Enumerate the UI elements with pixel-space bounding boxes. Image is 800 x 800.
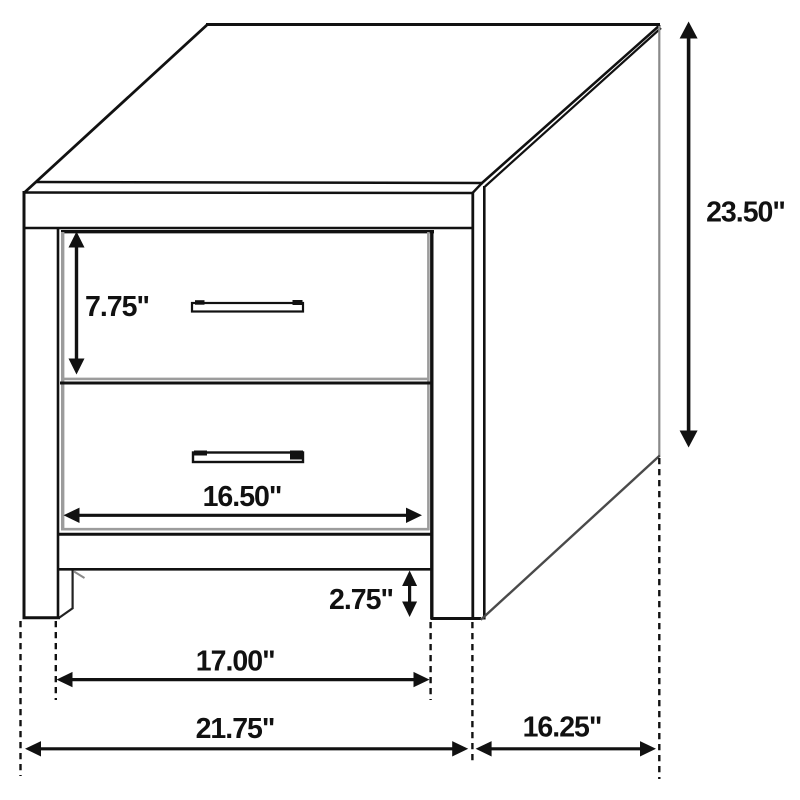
svg-text:23.50": 23.50" — [706, 196, 785, 228]
svg-text:2.75": 2.75" — [329, 584, 393, 616]
svg-text:7.75": 7.75" — [85, 291, 149, 323]
svg-text:21.75": 21.75" — [196, 713, 275, 745]
svg-text:17.00": 17.00" — [196, 646, 275, 678]
svg-text:16.50": 16.50" — [203, 481, 282, 513]
svg-text:16.25": 16.25" — [523, 712, 602, 744]
